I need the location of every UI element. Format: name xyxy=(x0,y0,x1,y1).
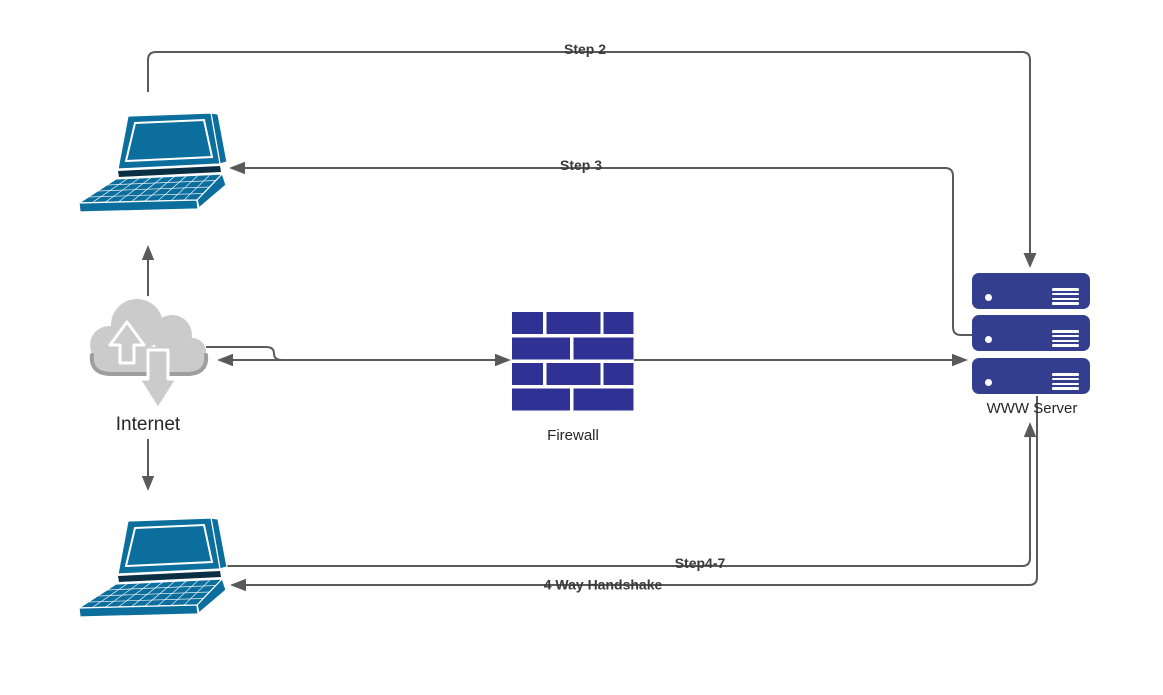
internet-cloud-icon xyxy=(85,293,213,419)
network-diagram-canvas: Internet Firewall xyxy=(0,0,1163,695)
edge-firewall-to-server-line xyxy=(634,354,968,366)
edge-label-step3: Step 3 xyxy=(560,157,602,173)
edge-internet-to-laptop-top-line xyxy=(142,245,154,296)
server-led-dot xyxy=(985,294,992,301)
server-unit xyxy=(972,358,1090,394)
arrowhead-left-icon xyxy=(217,354,233,366)
firewall-icon xyxy=(512,312,634,412)
edge-handshake-line xyxy=(230,396,1037,591)
arrowhead-down-icon xyxy=(1024,253,1037,268)
server-vents-icon xyxy=(1052,288,1079,305)
laptop-client-top-icon xyxy=(70,88,232,228)
server-vents-icon xyxy=(1052,373,1079,390)
arrowhead-down-icon xyxy=(142,476,154,491)
firewall-label: Firewall xyxy=(513,428,633,445)
server-led-dot xyxy=(985,379,992,386)
edge-label-step2: Step 2 xyxy=(564,41,606,57)
www-server-label: WWW Server xyxy=(972,401,1092,418)
internet-label: Internet xyxy=(88,415,208,436)
edge-internet-to-firewall-line xyxy=(206,347,511,366)
server-led-dot xyxy=(985,336,992,343)
server-unit xyxy=(972,315,1090,351)
arrowhead-up-icon xyxy=(142,245,154,260)
arrowhead-right-icon xyxy=(495,354,511,366)
edge-label-step4-7: Step4-7 xyxy=(675,555,726,571)
edge-label-4-way-handshake: 4 Way Handshake xyxy=(544,577,663,593)
server-vents-icon xyxy=(1052,330,1079,347)
server-unit xyxy=(972,273,1090,309)
brick-wall xyxy=(512,312,634,411)
edge-firewall-to-internet-line xyxy=(217,354,495,366)
www-server-stack-icon xyxy=(972,273,1090,395)
arrowhead-right-icon xyxy=(952,354,968,366)
laptop-client-bottom-icon xyxy=(70,493,232,633)
edge-internet-to-laptop-bottom-line xyxy=(142,439,154,491)
arrowhead-up-icon xyxy=(1024,422,1036,437)
arrowhead-left-icon xyxy=(230,579,246,591)
edge-step3-line xyxy=(229,162,972,335)
